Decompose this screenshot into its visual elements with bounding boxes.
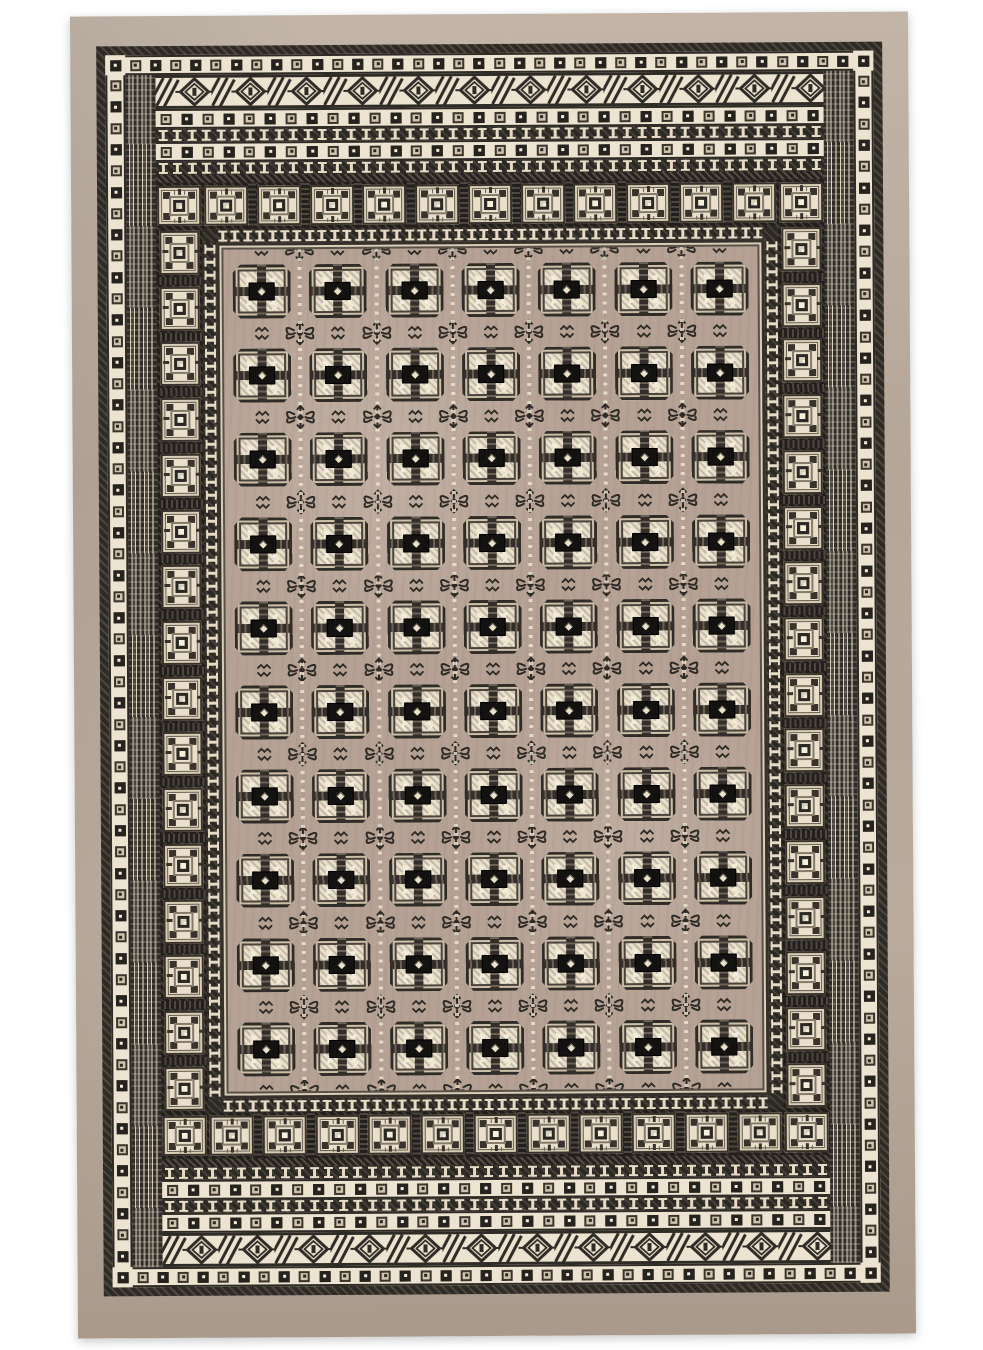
- i-motif: [420, 230, 423, 239]
- rosette-motif: [522, 1182, 533, 1193]
- i-motif: [597, 161, 600, 170]
- i-motif: [524, 129, 527, 138]
- border-tile: [160, 287, 200, 331]
- tile-separator: [465, 1111, 473, 1157]
- medallion-center: [478, 281, 504, 299]
- rosette-motif: [272, 1217, 283, 1228]
- rosette-motif: [209, 1217, 220, 1228]
- i-motif: [365, 163, 368, 172]
- rosette-motif: [804, 1268, 815, 1279]
- rosette-motif: [111, 293, 122, 304]
- gul-medallion: [540, 599, 598, 653]
- i-motif: [278, 130, 281, 139]
- medallion-center: [630, 280, 656, 298]
- medallion-center: [557, 786, 583, 804]
- rosette-motif: [113, 549, 124, 560]
- gul-medallion: [388, 769, 446, 823]
- rosette-motif: [265, 113, 276, 124]
- rosette-motif: [453, 145, 464, 156]
- tile-separator: [571, 1110, 579, 1156]
- rosette-motif: [188, 1217, 199, 1228]
- i-motif: [376, 1100, 379, 1109]
- i-motif: [669, 228, 672, 237]
- tile-mark: [178, 189, 181, 195]
- i-motif: [525, 162, 528, 171]
- rosette-motif: [501, 1182, 512, 1193]
- tile-border-top: [202, 179, 778, 229]
- i-motif: [208, 740, 217, 743]
- i-motif: [209, 896, 218, 899]
- rosette-motif: [575, 57, 586, 68]
- rosette-motif: [536, 144, 547, 155]
- tile-separator: [159, 667, 205, 675]
- gul-medallion: [692, 598, 750, 652]
- i-motif: [176, 131, 179, 140]
- gul-medallion: [234, 517, 292, 571]
- rosette-motif: [522, 1215, 533, 1226]
- rosette-motif: [292, 1217, 303, 1228]
- rosette-motif: [710, 1181, 721, 1192]
- tile-separator: [723, 180, 731, 226]
- rosette-motif: [115, 953, 126, 964]
- i-motif: [691, 1199, 694, 1208]
- i-motif: [570, 229, 573, 238]
- medallion-center: [402, 450, 428, 468]
- i-motif: [815, 160, 818, 169]
- border-tile: [685, 1113, 729, 1153]
- rosette-motif: [433, 58, 444, 69]
- rosette-motif: [661, 110, 672, 121]
- i-motif: [487, 1167, 490, 1176]
- gul-medallion: [389, 937, 447, 991]
- rosette-motif: [668, 1214, 679, 1225]
- rosette-motif: [656, 56, 667, 67]
- gul-medallion: [615, 430, 673, 484]
- rosette-motif: [515, 111, 526, 122]
- rosette-motif: [112, 378, 123, 389]
- i-motif: [207, 585, 216, 588]
- border-tile: [161, 565, 201, 609]
- i-motif: [219, 131, 222, 140]
- rosette-motif: [861, 565, 872, 576]
- i-motif: [445, 230, 448, 239]
- medallion-center: [559, 1038, 585, 1056]
- tile-separator: [512, 181, 520, 227]
- tile-mark: [184, 1119, 187, 1125]
- rosette-motif: [328, 145, 339, 156]
- i-motif: [728, 128, 731, 137]
- i-motif: [770, 789, 779, 792]
- i-motif: [770, 776, 779, 779]
- i-motif: [301, 1101, 304, 1110]
- i-motif: [350, 163, 353, 172]
- rosette-motif: [643, 1269, 654, 1280]
- tile-mark: [166, 807, 172, 810]
- rosette-motif: [157, 1271, 168, 1282]
- i-motif: [475, 1100, 478, 1109]
- i-motif: [168, 1169, 171, 1178]
- i-motif: [263, 130, 266, 139]
- gul-medallion: [616, 515, 674, 569]
- rosette-motif: [334, 1183, 345, 1194]
- i-motif: [545, 1200, 548, 1209]
- i-motif: [221, 231, 224, 240]
- rosette-motif: [117, 1230, 128, 1241]
- rosette-motif: [543, 1215, 554, 1226]
- i-motif: [772, 1022, 781, 1025]
- rosette-motif: [864, 1076, 875, 1087]
- rosette-motif: [441, 1270, 452, 1281]
- medallion-center: [328, 787, 354, 805]
- rosette-motif: [117, 1272, 128, 1283]
- i-motif: [768, 465, 777, 468]
- tile-separator: [780, 551, 826, 559]
- rosette-motif: [411, 145, 422, 156]
- i-motif: [234, 131, 237, 140]
- border-tile: [679, 183, 723, 223]
- medallion-center: [329, 956, 355, 974]
- border-tile: [737, 1112, 781, 1152]
- border-tile: [782, 338, 822, 382]
- i-motif: [206, 416, 215, 419]
- i-motif: [589, 1166, 592, 1175]
- rosette-motif: [116, 1144, 127, 1155]
- rosette-motif: [647, 1214, 658, 1225]
- i-motif: [538, 1099, 541, 1108]
- medallion-center: [404, 702, 430, 720]
- rosette-motif: [438, 1183, 449, 1194]
- i-motif: [768, 387, 777, 390]
- rosette-motif: [355, 1183, 366, 1194]
- i-motif: [742, 127, 745, 136]
- i-motif: [661, 1199, 664, 1208]
- i-motif: [264, 1101, 267, 1110]
- i-motif: [307, 130, 310, 139]
- gul-medallion: [616, 599, 674, 653]
- rosette-motif: [599, 111, 610, 122]
- i-motif: [821, 1165, 824, 1174]
- i-motif: [771, 945, 780, 948]
- rosette-motif: [864, 1140, 875, 1151]
- rosette-motif: [110, 102, 121, 113]
- i-motif: [283, 231, 286, 240]
- rosette-motif: [703, 1268, 714, 1279]
- i-motif: [226, 1101, 229, 1110]
- rosette-motif: [635, 57, 646, 68]
- i-motif: [209, 909, 218, 912]
- rosette-motif: [115, 868, 126, 879]
- i-motif: [270, 1201, 273, 1210]
- i-motif: [210, 1091, 219, 1094]
- i-motif: [670, 161, 673, 170]
- i-motif: [350, 130, 353, 139]
- border-tile: [310, 185, 354, 225]
- rosette-motif: [352, 58, 363, 69]
- tile-separator: [158, 444, 204, 452]
- gul-medallion: [237, 1022, 295, 1076]
- i-motif: [589, 1199, 592, 1208]
- i-motif: [767, 257, 776, 260]
- i-motif: [821, 1198, 824, 1207]
- medallion-center: [710, 785, 736, 803]
- tile-mark: [225, 189, 228, 195]
- rosette-motif: [516, 144, 527, 155]
- tile-separator: [783, 997, 829, 1005]
- rosette-ring-corner: [853, 51, 873, 71]
- tile-separator: [780, 440, 826, 448]
- i-motif: [545, 1167, 548, 1176]
- i-motif: [771, 841, 780, 844]
- i-motif: [611, 128, 614, 137]
- gul-medallion: [619, 1020, 677, 1074]
- i-motif: [255, 1201, 258, 1210]
- i-motif: [600, 1099, 603, 1108]
- i-motif: [554, 162, 557, 171]
- i-motif-ring: [202, 225, 783, 1113]
- gul-medallion: [312, 769, 370, 823]
- i-motif: [208, 728, 217, 731]
- i-motif: [321, 231, 324, 240]
- tile-mark: [495, 1117, 498, 1123]
- rosette-motif: [585, 1215, 596, 1226]
- border-tile: [784, 673, 824, 717]
- rosette-motif: [863, 991, 874, 1002]
- i-motif: [371, 1201, 374, 1210]
- medallion-center: [404, 787, 430, 805]
- tile-border-corner: [778, 179, 824, 225]
- medallion-center: [251, 703, 277, 721]
- i-motif: [770, 737, 779, 740]
- medallion-center: [480, 618, 506, 636]
- i-motif: [226, 1202, 229, 1211]
- i-motif: [206, 481, 215, 484]
- border-tile: [782, 283, 822, 327]
- rosette-motif: [766, 143, 777, 154]
- rosette-motif: [495, 144, 506, 155]
- i-motif: [423, 162, 426, 171]
- rosette-motif: [825, 1267, 836, 1278]
- border-tile: [415, 184, 459, 224]
- rosette-ring-corner: [861, 1263, 881, 1283]
- i-motif: [650, 1099, 653, 1108]
- gul-medallion: [386, 432, 444, 486]
- i-motif: [560, 1167, 563, 1176]
- i-motif: [207, 637, 216, 640]
- rosette-motif: [114, 719, 125, 730]
- i-motif: [328, 1201, 331, 1210]
- rosette-motif: [474, 112, 485, 123]
- rosette-motif: [251, 1217, 262, 1228]
- i-motif: [386, 1201, 389, 1210]
- rosette-motif: [114, 740, 125, 751]
- medallion-center: [327, 535, 353, 553]
- rosette-motif: [860, 459, 871, 470]
- rosette-motif: [420, 1270, 431, 1281]
- rosette-motif: [202, 113, 213, 124]
- tile-mark: [789, 971, 795, 974]
- rosette-motif: [859, 310, 870, 321]
- i-motif: [769, 568, 778, 571]
- rosette-motif: [115, 889, 126, 900]
- i-motif: [707, 228, 710, 237]
- tile-mark: [163, 361, 169, 364]
- border-tile: [262, 1115, 306, 1155]
- i-motif: [168, 1202, 171, 1211]
- gul-medallion: [387, 600, 445, 654]
- tile-separator: [518, 1111, 526, 1157]
- i-motif: [210, 1052, 219, 1055]
- tile-separator: [158, 499, 204, 507]
- i-motif: [458, 1200, 461, 1209]
- rosette-motif: [542, 1269, 553, 1280]
- medallion-center: [249, 282, 275, 300]
- medallion-center: [406, 1039, 432, 1057]
- i-motif: [191, 164, 194, 173]
- i-motif: [800, 127, 803, 136]
- rosette-motif: [863, 842, 874, 853]
- i-motif: [713, 161, 716, 170]
- rosette-motif: [418, 1216, 429, 1227]
- i-motif: [772, 1009, 781, 1012]
- rosette-motif: [332, 58, 343, 69]
- i-motif: [767, 283, 776, 286]
- i-motif: [768, 413, 777, 416]
- rosette-motif: [393, 58, 404, 69]
- i-motif: [463, 1100, 466, 1109]
- rosette-motif: [703, 110, 714, 121]
- rosette-motif: [115, 847, 126, 858]
- rosette-ring-corner: [113, 1267, 133, 1287]
- rosette-motif: [114, 676, 125, 687]
- i-motif: [452, 129, 455, 138]
- rosette-motif: [859, 246, 870, 257]
- i-motif: [539, 162, 542, 171]
- i-motif: [415, 1200, 418, 1209]
- i-motif: [208, 831, 217, 834]
- i-motif: [769, 659, 778, 662]
- i-motif: [209, 948, 218, 951]
- i-motif: [379, 163, 382, 172]
- i-motif: [763, 1165, 766, 1174]
- i-motif: [778, 1198, 781, 1207]
- rosette-motif: [112, 463, 123, 474]
- tile-mark: [789, 1082, 795, 1085]
- i-motif: [772, 1061, 781, 1064]
- medallion-center: [556, 617, 582, 635]
- i-ring-corner: [764, 225, 778, 239]
- rosette-motif: [339, 1270, 350, 1281]
- i-motif: [205, 313, 214, 316]
- border-tile: [785, 1112, 829, 1152]
- tile-separator: [157, 332, 203, 340]
- medallion-center: [328, 703, 354, 721]
- i-motif: [806, 1165, 809, 1174]
- gul-medallion: [692, 514, 750, 568]
- i-motif: [292, 163, 295, 172]
- tile-separator: [782, 830, 828, 838]
- tile-mark: [647, 186, 650, 192]
- rosette-motif: [724, 1268, 735, 1279]
- rosette-motif: [773, 1214, 784, 1225]
- i-motif: [220, 164, 223, 173]
- i-motif: [768, 452, 777, 455]
- gul-medallion: [389, 853, 447, 907]
- medallion-center: [554, 281, 580, 299]
- i-motif: [251, 1101, 254, 1110]
- rosette-motif: [793, 1214, 804, 1225]
- rosette-motif: [865, 1225, 876, 1236]
- i-motif: [209, 883, 218, 886]
- rosette-motif: [117, 1187, 128, 1198]
- tile-mark: [165, 640, 171, 643]
- gul-medallion: [618, 936, 676, 990]
- medallion-center: [253, 956, 279, 974]
- i-motif: [284, 1201, 287, 1210]
- rosette-motif: [864, 1161, 875, 1172]
- i-motif: [226, 1169, 229, 1178]
- i-motif: [575, 1099, 578, 1108]
- rosette-motif: [863, 948, 874, 959]
- rosette-motif: [745, 143, 756, 154]
- i-motif: [358, 230, 361, 239]
- i-motif: [292, 130, 295, 139]
- border-tile: [157, 186, 201, 226]
- rosette-motif: [223, 113, 234, 124]
- border-tile: [368, 1115, 412, 1155]
- i-motif: [176, 164, 179, 173]
- i-motif: [676, 1199, 679, 1208]
- medallion-center: [633, 701, 659, 719]
- i-motif: [212, 1202, 215, 1211]
- i-motif: [206, 442, 215, 445]
- rosette-motif: [115, 910, 126, 921]
- i-motif: [607, 229, 610, 238]
- rosette-motif: [865, 1204, 876, 1215]
- i-motif: [619, 229, 622, 238]
- rosette-motif: [764, 1268, 775, 1279]
- rosette-motif: [861, 608, 872, 619]
- rosette-motif: [860, 501, 871, 512]
- rosette-motif: [724, 143, 735, 154]
- rosette-motif: [641, 144, 652, 155]
- i-motif: [408, 230, 411, 239]
- rosette-motif: [355, 1216, 366, 1227]
- medallion-center: [405, 955, 431, 973]
- i-motif: [210, 1065, 219, 1068]
- rosette-motif: [218, 1271, 229, 1282]
- tile-separator: [781, 607, 827, 615]
- tile-mark: [165, 751, 171, 754]
- medallion-center: [250, 451, 276, 469]
- gul-medallion: [615, 346, 673, 400]
- rosette-motif: [116, 1059, 127, 1070]
- i-motif: [626, 128, 629, 137]
- rosette-motif: [112, 400, 123, 411]
- i-motif: [632, 1166, 635, 1175]
- i-motif: [687, 1098, 690, 1107]
- rosette-motif: [230, 1217, 241, 1228]
- border-tile: [786, 1007, 826, 1051]
- i-motif: [769, 633, 778, 636]
- gul-medallion: [313, 937, 371, 991]
- rosette-motif: [112, 506, 123, 517]
- rosette-motif: [170, 59, 181, 70]
- border-tile: [783, 506, 823, 550]
- i-motif: [207, 663, 216, 666]
- rosette-motif: [279, 1271, 290, 1282]
- tile-separator: [160, 890, 206, 898]
- i-motif: [767, 244, 776, 247]
